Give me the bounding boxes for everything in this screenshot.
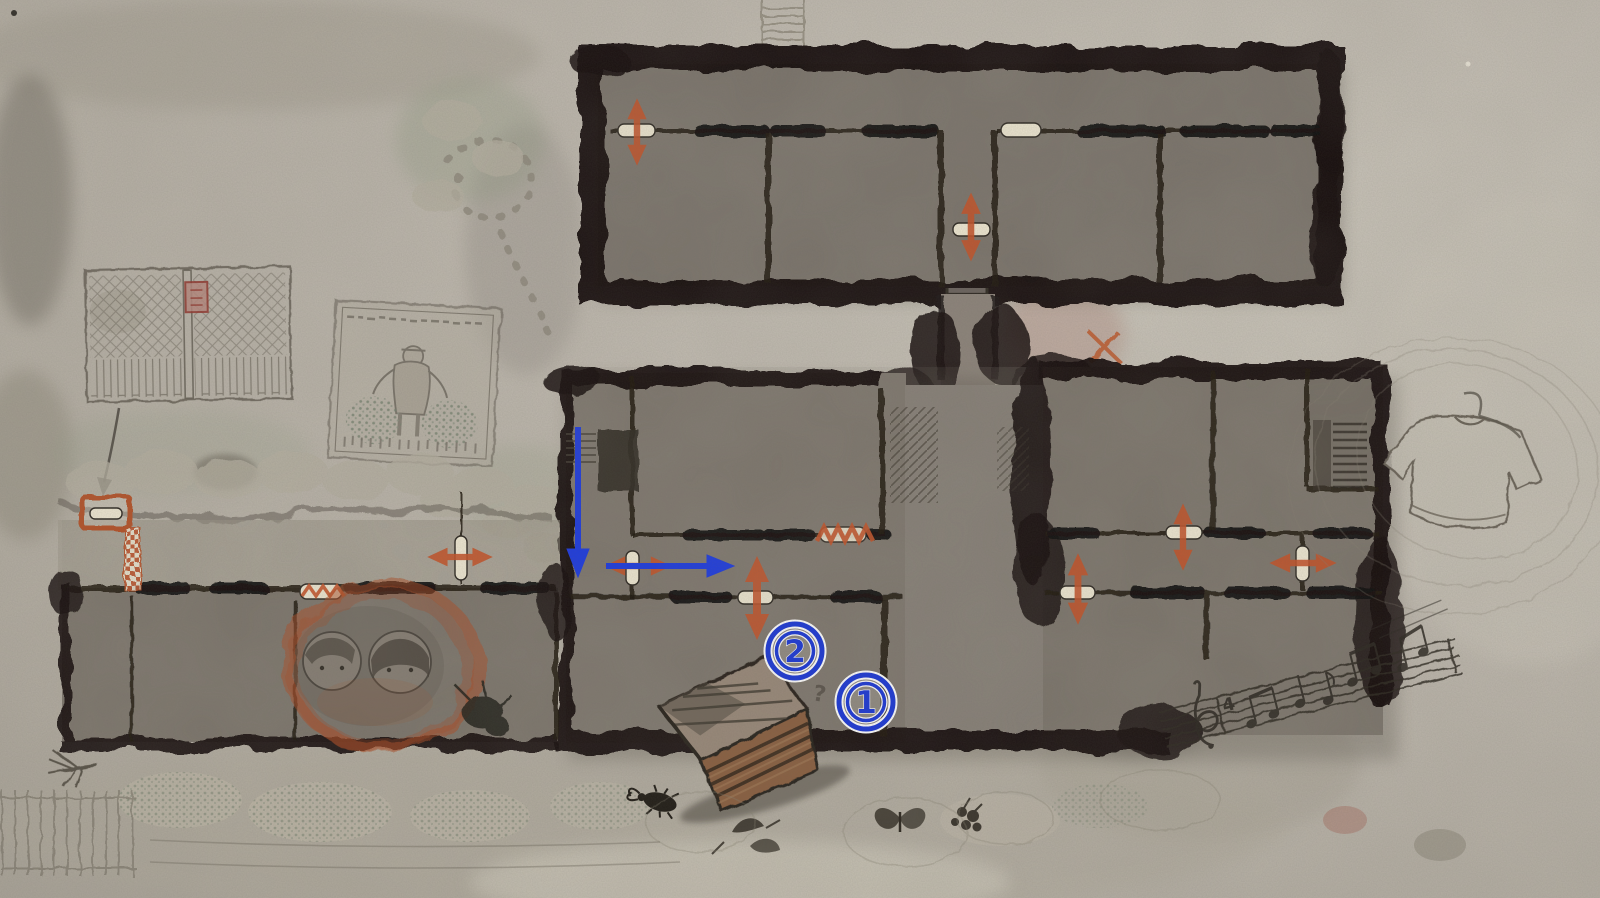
paper-mottle <box>0 0 1600 898</box>
map-illustration: 2 1 ? 4 <box>0 0 1600 898</box>
map-canvas: 2 1 ? 4 <box>0 0 1600 898</box>
